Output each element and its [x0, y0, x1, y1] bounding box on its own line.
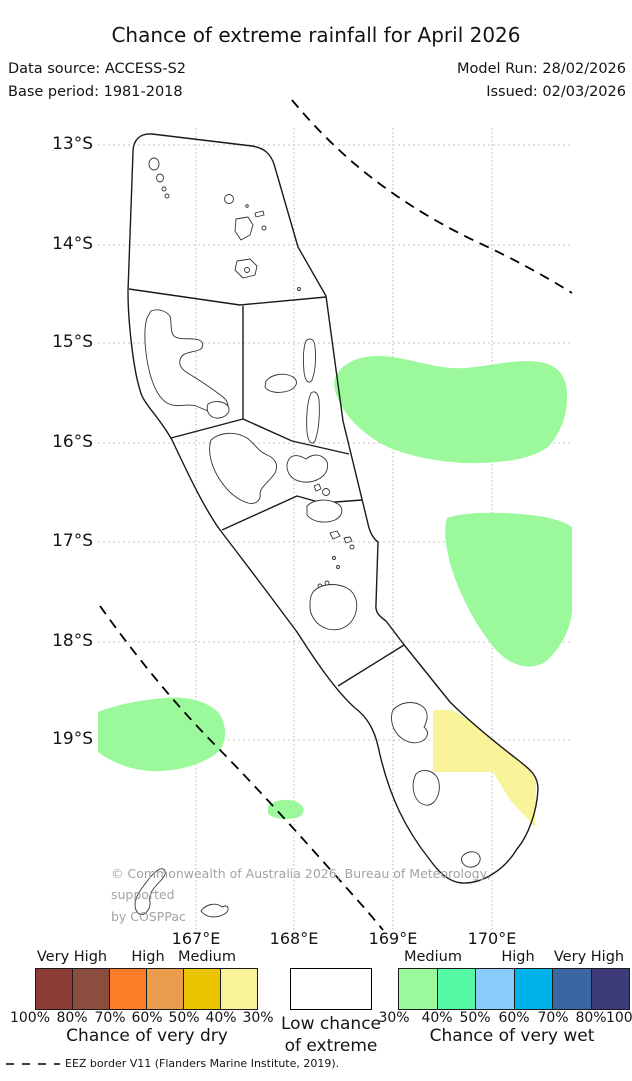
lon-label-169e: 169°E	[358, 929, 428, 948]
island-efate	[310, 585, 357, 630]
island-torres-2	[157, 174, 164, 182]
dry-swatch-60	[147, 969, 184, 1009]
island-mere-lava	[298, 288, 301, 291]
dry-swatch-70	[110, 969, 147, 1009]
island-lopevi	[323, 489, 330, 496]
wet-swatch-100	[592, 969, 630, 1009]
low-chance-line2: of extreme	[261, 1036, 401, 1056]
wet-patch-small-blob	[268, 800, 304, 819]
islands	[135, 158, 480, 917]
island-espiritu-santo	[145, 310, 228, 413]
island-torres-4	[165, 194, 169, 198]
island-ambae	[265, 374, 296, 392]
copyright-line2: by COSPPac	[111, 909, 186, 924]
eez-footer: EEZ border V11 (Flanders Marine Institut…	[5, 1057, 339, 1070]
island-dot-2	[262, 226, 266, 230]
island-shepherd-3	[350, 545, 354, 549]
island-tanna	[413, 770, 439, 805]
dry-patch-southeast	[433, 710, 536, 827]
wet-swatch-70	[553, 969, 592, 1009]
wet-patch-southwest	[98, 698, 225, 772]
dry-swatch-40	[221, 969, 257, 1009]
lon-label-170e: 170°E	[457, 929, 527, 948]
lon-label-168e: 168°E	[259, 929, 329, 948]
eez-footer-text: EEZ border V11 (Flanders Marine Institut…	[65, 1057, 339, 1070]
wet-pct-100: 100%	[603, 1010, 632, 1026]
lat-label-16s: 16°S	[31, 432, 93, 452]
eez-dash-sample-icon	[5, 1059, 61, 1069]
dry-colorbar	[35, 968, 258, 1010]
wet-header-very-high: Very High	[544, 949, 632, 965]
dry-swatch-100	[36, 969, 73, 1009]
island-malakula	[210, 433, 277, 503]
lat-label-19s: 19°S	[31, 729, 93, 749]
island-gaua-lake	[245, 268, 250, 273]
dry-header-medium: Medium	[162, 949, 252, 965]
wet-swatch-40	[438, 969, 477, 1009]
island-shepherd-1	[330, 531, 340, 539]
island-dot-1	[246, 205, 249, 208]
lon-label-167e: 167°E	[161, 929, 231, 948]
island-shepherd-4	[333, 557, 336, 560]
lat-label-14s: 14°S	[31, 234, 93, 254]
dry-legend-title: Chance of very dry	[37, 1026, 257, 1046]
island-shepherd-5	[337, 566, 340, 569]
copyright-note: © Commonwealth of Australia 2026, Bureau…	[111, 863, 531, 927]
zone-line-tafea-north	[338, 645, 404, 686]
dry-swatch-50	[184, 969, 221, 1009]
wet-pct-30: 30%	[371, 1010, 417, 1026]
island-ureparapara	[225, 195, 234, 204]
lat-label-17s: 17°S	[31, 531, 93, 551]
island-erromango	[392, 703, 428, 743]
wet-patch-east-south	[445, 513, 572, 667]
island-torres-1	[149, 158, 159, 170]
island-vanua-lava	[235, 217, 253, 240]
dry-swatch-80	[73, 969, 110, 1009]
low-chance-box	[290, 968, 372, 1010]
eez-border-northeast	[292, 100, 572, 293]
wet-header-medium: Medium	[388, 949, 478, 965]
island-epi	[307, 500, 342, 522]
wet-colorbar	[398, 968, 630, 1010]
wet-swatch-30	[399, 969, 438, 1009]
zone-line-torba-south	[129, 289, 326, 305]
copyright-line1: © Commonwealth of Australia 2026, Bureau…	[111, 866, 491, 902]
extreme-rainfall-outlook-page: { "title": "Chance of extreme rainfall f…	[0, 0, 632, 1081]
lat-label-13s: 13°S	[31, 134, 93, 154]
dry-pct-100: 100%	[7, 1010, 53, 1026]
island-paama	[314, 484, 321, 491]
wet-legend-title: Chance of very wet	[402, 1026, 622, 1046]
island-ambrym	[287, 455, 328, 482]
zone-line-malampa-north	[171, 419, 349, 454]
island-torres-3	[162, 187, 166, 191]
lat-label-18s: 18°S	[31, 631, 93, 651]
wet-swatch-60	[515, 969, 554, 1009]
island-maewo	[303, 339, 315, 382]
lat-label-15s: 15°S	[31, 332, 93, 352]
island-malo	[207, 402, 229, 419]
island-shepherd-2	[344, 537, 352, 543]
island-pentecost	[307, 392, 320, 443]
wet-patch-east-north	[334, 356, 567, 463]
island-motalava	[255, 211, 264, 217]
wet-swatch-50	[476, 969, 515, 1009]
